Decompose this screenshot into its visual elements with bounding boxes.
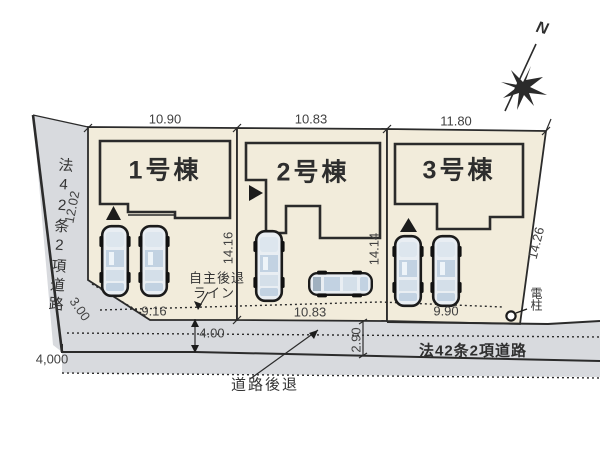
dim-lot2-bottom: 10.83 <box>294 306 327 319</box>
car-icon <box>392 236 423 306</box>
dim-lot3-top: 11.80 <box>440 115 472 128</box>
utility-pole-label: 電柱 <box>530 287 542 311</box>
dim-road-width: 4.00 <box>199 327 224 340</box>
dim-lot1-depth: 14.16 <box>222 232 235 265</box>
bottom-road-name: 法42条2項道路 <box>419 344 527 359</box>
dim-lot3-bottom: 9.90 <box>433 305 458 318</box>
north-arrow-icon <box>501 44 547 111</box>
car-icon <box>138 226 169 296</box>
dim-road-width-mm: 4,000 <box>36 353 69 366</box>
dim-lot2-depth: 14.14 <box>368 233 381 266</box>
parked-cars <box>99 226 461 306</box>
site-plan-drawing <box>0 0 600 473</box>
lot-1-label: 1号棟 <box>129 159 202 184</box>
dim-lot1-bottom: 9.16 <box>141 305 166 318</box>
dim-lot2-top: 10.83 <box>295 113 328 126</box>
voluntary-setback-line-label-2: ライン <box>193 287 235 300</box>
car-icon <box>309 271 372 298</box>
lot-2-label: 2号棟 <box>277 161 350 186</box>
car-icon <box>99 226 130 296</box>
lot-3-label: 3号棟 <box>423 159 496 184</box>
dim-setback-depth: 2.90 <box>350 327 363 352</box>
site-plan: 1号棟 2号棟 3号棟 10.90 10.83 11.80 12.02 14.1… <box>0 0 600 473</box>
car-icon <box>430 236 461 306</box>
car-icon <box>253 231 284 301</box>
voluntary-setback-line-label-1: 自主後退 <box>189 272 245 285</box>
road-retreat-label: 道路後退 <box>231 378 299 393</box>
dim-lot1-top: 10.90 <box>149 113 182 126</box>
